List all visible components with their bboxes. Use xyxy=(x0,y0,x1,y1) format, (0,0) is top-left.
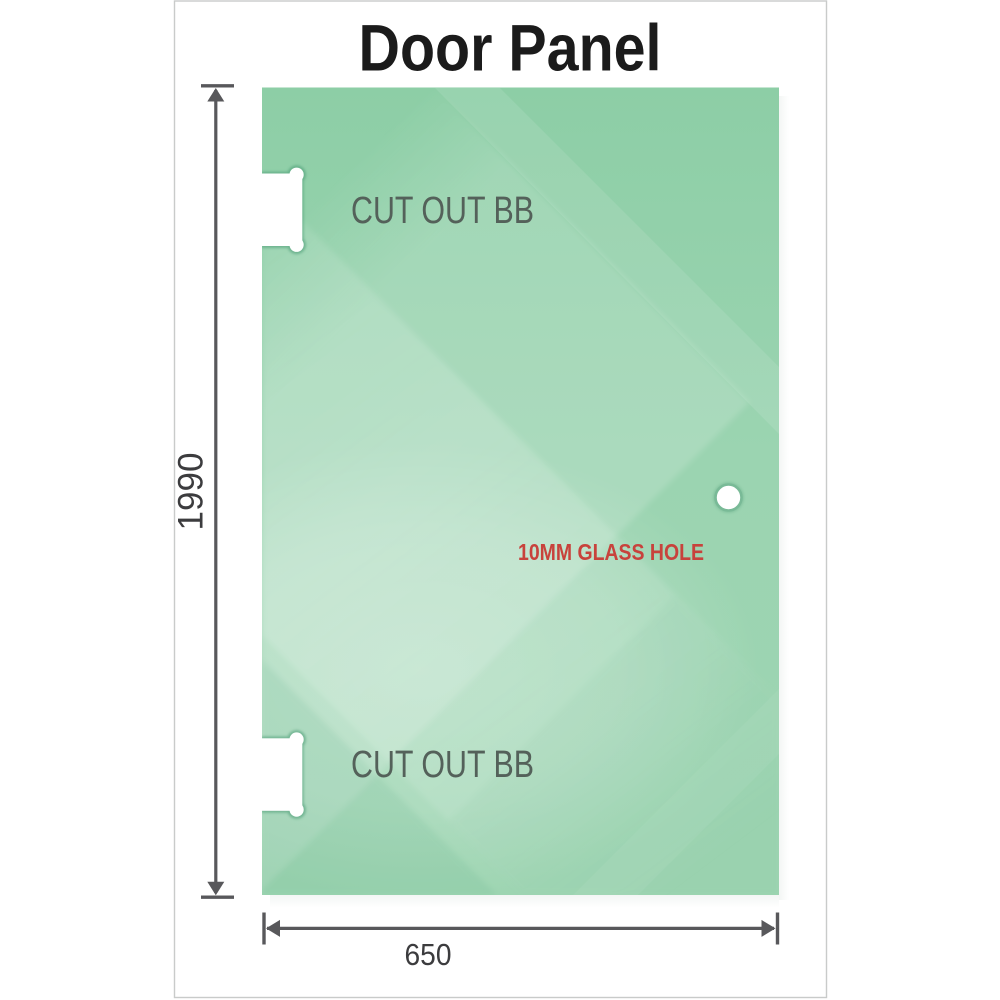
svg-text:Door Panel: Door Panel xyxy=(359,11,662,85)
svg-text:CUT OUT BB: CUT OUT BB xyxy=(351,190,534,232)
svg-text:1990: 1990 xyxy=(172,453,211,531)
svg-text:10MM GLASS HOLE: 10MM GLASS HOLE xyxy=(518,539,704,565)
svg-text:CUT OUT BB: CUT OUT BB xyxy=(351,744,534,786)
svg-text:650: 650 xyxy=(405,937,452,972)
